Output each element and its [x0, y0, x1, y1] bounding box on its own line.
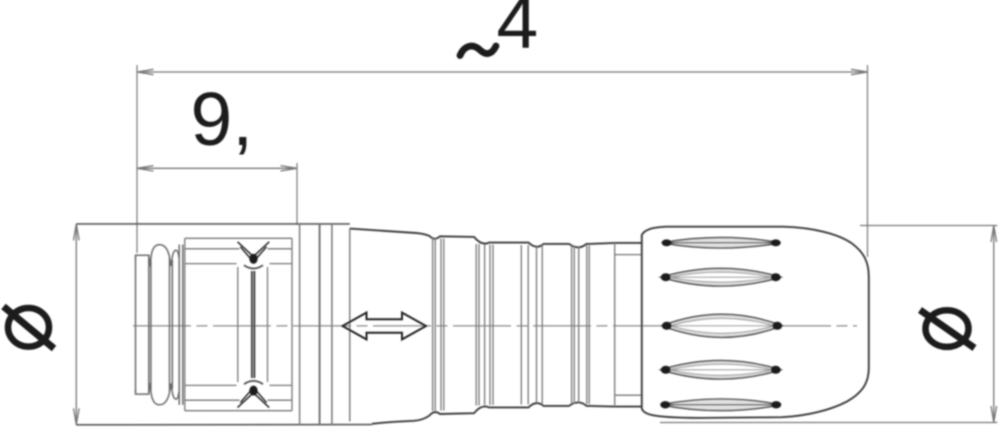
svg-text:4: 4: [497, 0, 539, 64]
svg-text:9,: 9,: [191, 77, 254, 161]
